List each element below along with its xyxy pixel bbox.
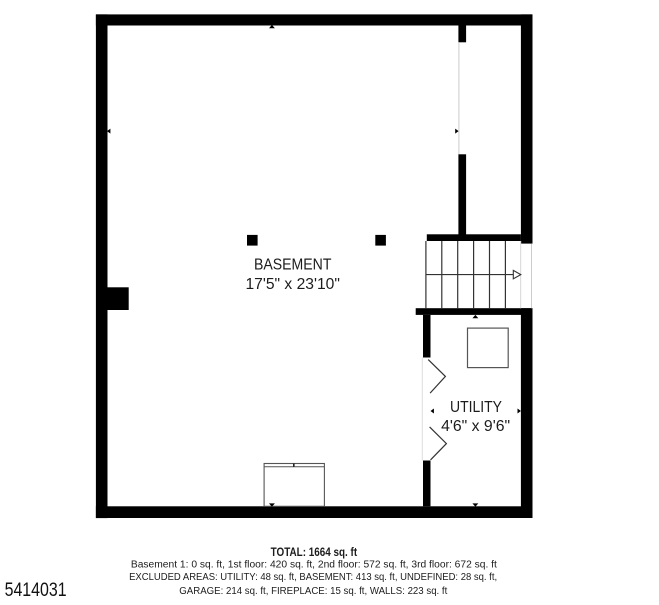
- svg-text:5414031: 5414031: [5, 579, 67, 600]
- svg-text:GARAGE: 214 sq. ft, FIREPLACE:: GARAGE: 214 sq. ft, FIREPLACE: 15 sq. ft…: [179, 586, 447, 597]
- svg-text:BASEMENT: BASEMENT: [254, 257, 332, 274]
- svg-text:17'5" x 23'10": 17'5" x 23'10": [245, 276, 340, 293]
- svg-text:4'6" x 9'6": 4'6" x 9'6": [441, 418, 510, 435]
- svg-text:Basement 1: 0 sq. ft, 1st floo: Basement 1: 0 sq. ft, 1st floor: 420 sq.…: [131, 559, 497, 570]
- svg-text:UTILITY: UTILITY: [450, 399, 502, 416]
- svg-text:EXCLUDED AREAS: UTILITY: 48 sq: EXCLUDED AREAS: UTILITY: 48 sq. ft, BASE…: [129, 572, 497, 583]
- svg-text:TOTAL: 1664 sq. ft: TOTAL: 1664 sq. ft: [271, 545, 358, 559]
